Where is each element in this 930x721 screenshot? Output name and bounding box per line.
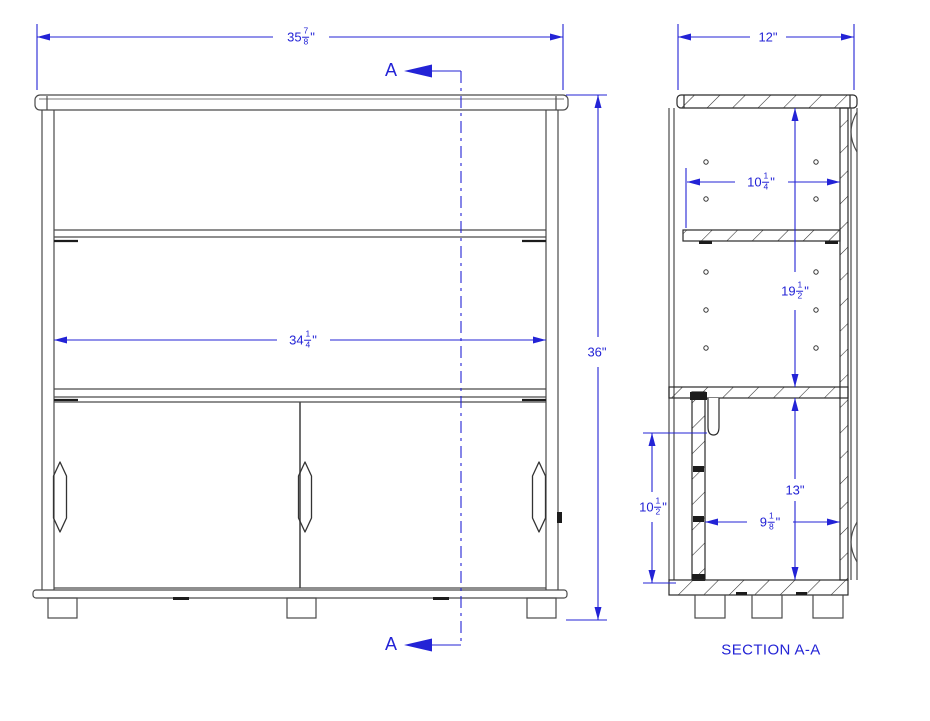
shelf-pin-right (825, 241, 838, 244)
dim-depth: 12" (758, 31, 777, 44)
dim-whole: 34 (289, 334, 303, 347)
dim-unit: " (800, 484, 805, 497)
section-adjustable-shelf (683, 230, 840, 241)
front-view (33, 95, 568, 618)
dim-unit: " (602, 346, 607, 359)
dim-whole: 12 (758, 31, 772, 44)
front-foot-right (527, 598, 556, 618)
section-bottom-board (669, 580, 848, 595)
dim-denominator: 8 (304, 38, 309, 48)
foot-mark-1 (736, 592, 747, 595)
front-foot-left (48, 598, 77, 618)
section-marker-a-bottom: A (385, 635, 397, 653)
section-top-board (677, 95, 857, 108)
dim-denominator: 8 (769, 523, 774, 533)
door-roller-lower (693, 516, 704, 522)
section-side-behind (851, 108, 857, 580)
rear-foot-mark-right (433, 597, 449, 600)
dim-whole: 35 (287, 31, 301, 44)
door-roller-upper (693, 466, 704, 472)
dim-unit: " (662, 501, 667, 514)
dim-whole: 10 (747, 176, 761, 189)
dim-lower-opening-height: 13" (785, 484, 804, 497)
dim-upper-height-lines (792, 108, 799, 387)
section-foot-rear (813, 595, 843, 618)
dim-interior-width: 3414" (289, 330, 317, 351)
dim-whole: 13 (785, 484, 799, 497)
dim-unit: " (804, 285, 809, 298)
shelf-pin-left (699, 241, 712, 244)
grain-arc-top (851, 112, 857, 152)
dim-denominator: 2 (798, 292, 803, 302)
front-plinth (33, 588, 567, 598)
dim-unit: " (312, 334, 317, 347)
dim-whole: 10 (639, 501, 653, 514)
door-handle-right (533, 462, 546, 532)
dim-whole: 19 (781, 285, 795, 298)
section-arrow-top (404, 65, 432, 78)
front-right-side-panel (546, 110, 558, 590)
grain-arc-bottom (851, 522, 857, 562)
section-arrow-bottom (404, 639, 432, 652)
dim-unit: " (776, 516, 781, 529)
section-back-panel (840, 108, 848, 580)
dim-unit: " (770, 176, 775, 189)
dim-unit: " (773, 31, 778, 44)
dim-denominator: 4 (306, 341, 311, 351)
dimension-graphics (37, 24, 854, 652)
door-track-top (690, 392, 707, 400)
cad-drawing-canvas: 3578" 12" 36" 3414" 1014" 1912" 13" 1012… (0, 0, 930, 721)
dim-unit: " (310, 31, 315, 44)
section-foot-middle (752, 595, 782, 618)
section-marker-a-top: A (385, 61, 397, 79)
front-top-board (35, 95, 568, 110)
front-foot-center (287, 598, 316, 618)
drawing-linework (0, 0, 930, 721)
dim-overall-height: 36" (587, 346, 606, 359)
door-handle-left (54, 462, 67, 532)
section-door (690, 392, 719, 581)
dim-denominator: 2 (656, 508, 661, 518)
section-front-edge (669, 108, 674, 580)
door-catch-mark (557, 512, 562, 523)
dim-whole: 9 (760, 516, 767, 529)
dim-lower-clear-depth: 918" (760, 512, 781, 533)
section-cut-line (404, 65, 461, 652)
dim-door-height: 1012" (639, 497, 667, 518)
rear-foot-mark-left (173, 597, 189, 600)
front-adjustable-shelf (54, 230, 546, 241)
dim-front-overall-width: 3578" (287, 27, 315, 48)
front-fixed-shelf (54, 389, 546, 400)
dim-denominator: 4 (764, 183, 769, 193)
section-feet (695, 592, 843, 618)
section-view-title: SECTION A-A (721, 643, 820, 658)
dim-whole: 36 (587, 346, 601, 359)
foot-mark-2 (796, 592, 807, 595)
front-doors (54, 402, 563, 588)
dim-upper-opening-height: 1912" (781, 281, 809, 302)
section-foot-front (695, 595, 725, 618)
front-left-side-panel (42, 110, 54, 590)
front-feet (48, 597, 556, 618)
dim-shelf-clear-depth: 1014" (747, 172, 775, 193)
door-handle-groove (708, 398, 719, 435)
